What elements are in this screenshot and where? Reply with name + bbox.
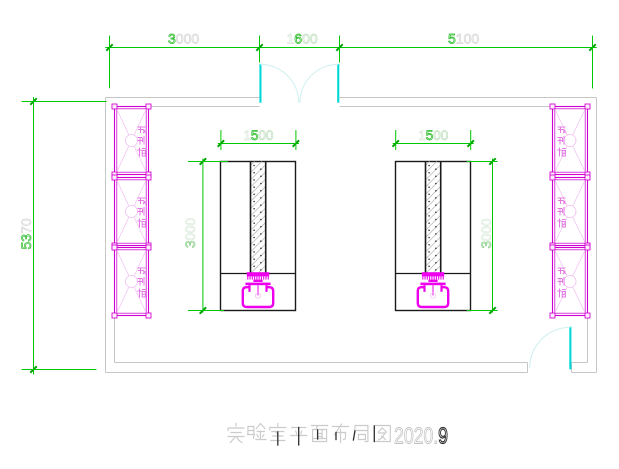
svg-text:5100: 5100 <box>448 31 479 47</box>
svg-text:2020.9: 2020.9 <box>394 423 448 449</box>
svg-text:1500: 1500 <box>243 128 273 143</box>
svg-text:1500: 1500 <box>418 128 448 143</box>
svg-text:3000: 3000 <box>479 218 494 248</box>
svg-text:1600: 1600 <box>287 31 318 47</box>
svg-text:3000: 3000 <box>183 218 198 248</box>
svg-text:3000: 3000 <box>168 31 199 47</box>
svg-text:5370: 5370 <box>18 218 34 249</box>
